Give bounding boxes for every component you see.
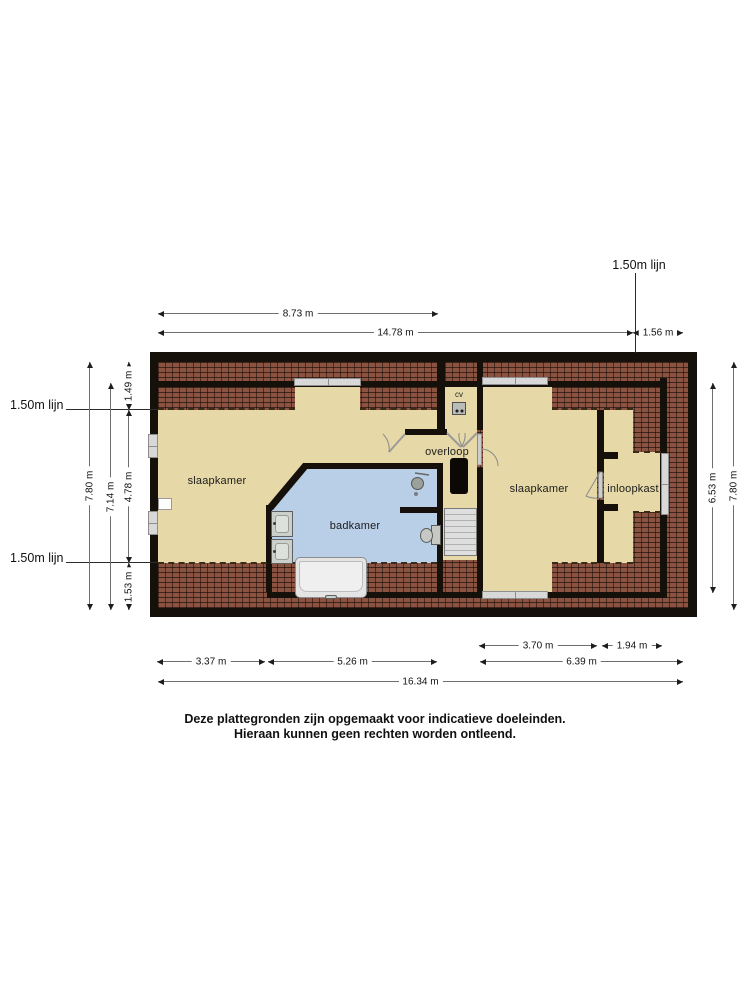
dash-line (604, 562, 633, 564)
radiator-icon (158, 498, 172, 510)
label-150-line-left-upper: 1.50m lijn (10, 398, 64, 412)
dim-526: 5.26 m (268, 661, 437, 662)
dim-337: 3.37 m (157, 661, 265, 662)
dim-149: 1.49 m (128, 362, 129, 410)
wall-cv-left (437, 362, 445, 435)
label-150-line-left-lower: 1.50m lijn (10, 551, 64, 565)
line-150-left-upper (66, 409, 158, 410)
bathtub-basin (299, 561, 363, 592)
dash-line (552, 408, 597, 410)
sink-icon (271, 539, 293, 564)
window-left-upper (148, 434, 158, 458)
dash-line (158, 562, 267, 564)
dash-line (633, 511, 661, 513)
window-left-lower (148, 511, 158, 535)
wall-landing-top (405, 429, 447, 435)
dim-1478: 14.78 m (158, 332, 633, 333)
label-150-line-top: 1.50m lijn (599, 258, 679, 272)
dim-194: 1.94 m (602, 645, 662, 646)
dim-653: 6.53 m (712, 383, 713, 593)
window-bedroom-right-top (482, 377, 548, 385)
floorplan-page: cv (0, 0, 750, 1000)
label-walk-in-closet: inloopkast (583, 483, 683, 495)
dim-370: 3.70 m (479, 645, 597, 646)
dim-156: 1.56 m (633, 332, 683, 333)
line-150-top (635, 273, 636, 353)
dim-780-left: 7.80 m (89, 362, 90, 610)
stair-void (450, 458, 468, 494)
label-bedroom-left: slaapkamer (167, 475, 267, 487)
dash-line (633, 451, 661, 453)
sink-basin (275, 543, 289, 560)
toilet-bowl-icon (420, 528, 433, 543)
dash-line (604, 408, 633, 410)
tap-icon (273, 550, 276, 553)
disclaimer-line-2: Hieraan kunnen geen rechten worden ontle… (0, 727, 750, 742)
boiler-label: cv (449, 390, 469, 399)
wall-landing-right-upper (477, 362, 483, 430)
dim-478: 4.78 m (128, 410, 129, 563)
dim-1634: 16.34 m (158, 681, 683, 682)
room-closet-bump (633, 452, 661, 512)
bathtub-tap-icon (325, 595, 337, 599)
window-dormer-top (294, 378, 361, 386)
bathtub-icon (295, 557, 367, 598)
shower-head-icon (411, 477, 424, 490)
label-landing: overloop (397, 446, 497, 458)
shower-drain-icon (414, 492, 418, 496)
dim-153: 1.53 m (128, 563, 129, 610)
sink-basin (275, 515, 289, 533)
wall-closet-stub-bottom (604, 504, 618, 511)
wall-closet-upper (597, 410, 604, 472)
wall-knee-top (158, 381, 667, 387)
dim-780-right: 7.80 m (733, 362, 734, 610)
boiler-unit-icon (452, 402, 466, 415)
dash-line (158, 408, 295, 410)
dash-line (360, 408, 437, 410)
wall-closet-stub-top (604, 452, 618, 459)
room-dormer-nook (295, 385, 360, 410)
window-bedroom-right-bottom (482, 591, 548, 599)
wall-landing-right-lower (477, 468, 483, 598)
dim-873: 8.73 m (158, 313, 438, 314)
label-bathroom: badkamer (305, 520, 405, 532)
stairs-icon (444, 508, 477, 556)
wall-bathroom-top (303, 463, 443, 469)
wall-closet-lower (597, 500, 604, 563)
dash-line (552, 562, 597, 564)
sink-icon (271, 511, 293, 537)
dim-714: 7.14 m (110, 383, 111, 610)
line-150-left-lower (66, 562, 158, 563)
disclaimer-line-1: Deze plattegronden zijn opgemaakt voor i… (0, 712, 750, 727)
wall-toilet-stub (400, 507, 443, 513)
tap-icon (273, 522, 276, 525)
disclaimer: Deze plattegronden zijn opgemaakt voor i… (0, 712, 750, 742)
dim-639: 6.39 m (480, 661, 683, 662)
label-bedroom-right: slaapkamer (489, 483, 589, 495)
